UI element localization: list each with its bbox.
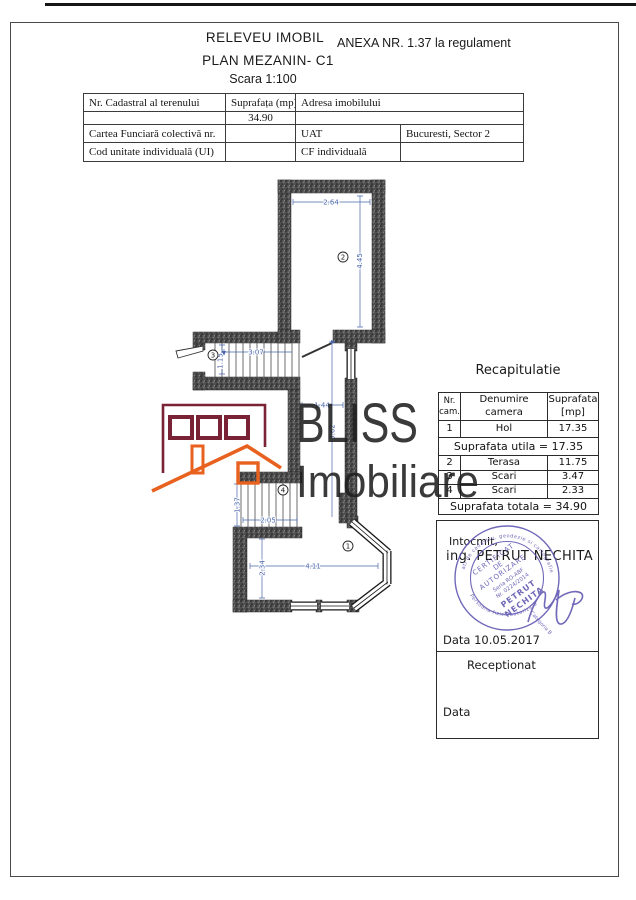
recap-r2-name: Terasa	[461, 456, 548, 471]
recap-title: Recapitulatie	[438, 363, 598, 378]
page-subtitle: PLAN MEZANIN- C1	[178, 53, 358, 68]
cell-uat: UAT	[296, 125, 401, 143]
cell-empty	[296, 112, 524, 125]
page-title: RELEVEU IMOBIL	[180, 30, 350, 45]
table-row: 1 Hol 17.35	[439, 421, 599, 438]
prepared-by-name: ing. PETRUT NECHITA	[446, 549, 593, 564]
recap-r1-name: Hol	[461, 421, 548, 438]
cell-empty	[401, 143, 524, 162]
cell-empty	[226, 143, 296, 162]
cell-adresa-header: Adresa imobilului	[296, 94, 524, 112]
recap-r1-area: 17.35	[548, 421, 599, 438]
cell-cf-individuala: CF individuală	[296, 143, 401, 162]
cell-uat-value: Bucuresti, Sector 2	[401, 125, 524, 143]
signature-box: Intocmit, ing. PETRUT NECHITA Data 10.05…	[436, 520, 599, 739]
received-label: Receptionat	[467, 658, 536, 672]
cell-empty	[226, 125, 296, 143]
scanned-document-page: { "header": { "title": "RELEVEU IMOBIL",…	[0, 0, 636, 900]
recap-header-suprafata: Suprafata [mp]	[548, 393, 599, 421]
recap-r4-nr: 4	[439, 485, 461, 499]
cell-nr-cadastral: Nr. Cadastral al terenului	[84, 94, 226, 112]
scan-edge-line	[45, 3, 636, 6]
recap-total: Suprafata totala = 34.90	[439, 499, 599, 515]
prepared-by-label: Intocmit,	[449, 535, 498, 548]
recap-subtotal: Suprafata utila = 17.35	[439, 438, 599, 456]
cell-area-value: 34.90	[226, 112, 296, 125]
cell-empty	[84, 112, 226, 125]
date-value: Data 10.05.2017	[443, 633, 540, 647]
recap-r4-area: 2.33	[548, 485, 599, 499]
recap-header-denumire: Denumire camera	[461, 393, 548, 421]
table-row: 2 Terasa 11.75	[439, 456, 599, 471]
cell-cod-unitate: Cod unitate individuală (UI)	[84, 143, 226, 162]
cell-suprafata-header: Suprafața (mp)	[226, 94, 296, 112]
cadastral-info-table: Nr. Cadastral al terenului Suprafața (mp…	[83, 93, 524, 162]
recap-r4-name: Scari	[461, 485, 548, 499]
recap-header-nr: Nr. cam.	[439, 393, 461, 421]
table-row: 4 Scari 2.33	[439, 485, 599, 499]
recap-r3-nr: 3	[439, 471, 461, 485]
recap-r2-nr: 2	[439, 456, 461, 471]
cell-cartea-funciara: Cartea Funciară colectivă nr.	[84, 125, 226, 143]
recap-table: Nr. cam. Denumire camera Suprafata [mp] …	[438, 392, 599, 515]
box-divider	[437, 651, 598, 652]
recap-r3-name: Scari	[461, 471, 548, 485]
date-label: Data	[443, 705, 470, 719]
scale-label: Scara 1:100	[178, 72, 348, 86]
recap-r2-area: 11.75	[548, 456, 599, 471]
table-row: 3 Scari 3.47	[439, 471, 599, 485]
recap-r1-nr: 1	[439, 421, 461, 438]
recap-r3-area: 3.47	[548, 471, 599, 485]
annex-label: ANEXA NR. 1.37 la regulament	[337, 36, 612, 50]
